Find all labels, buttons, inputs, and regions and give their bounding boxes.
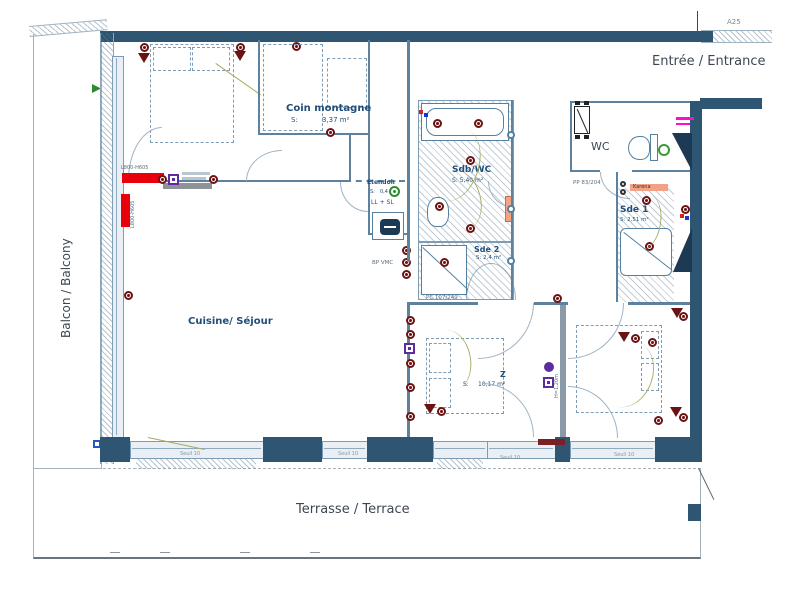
note-line (182, 172, 210, 175)
power-outlet-icon (326, 128, 335, 137)
wall-light-icon (544, 362, 554, 372)
wall-light-icon (234, 51, 246, 61)
area-label-etendoir: 0,4 (380, 190, 388, 195)
door-hinge-icon (620, 189, 626, 195)
dimension-tick (160, 552, 170, 553)
power-outlet-icon (648, 338, 657, 347)
wall-fixture-icon (507, 257, 515, 265)
tv-socket-icon (168, 174, 179, 185)
central-wall (407, 40, 410, 262)
partition-wall (570, 170, 600, 172)
area-label-sde2: S: 2,4 m² (476, 256, 501, 262)
meter-mark (676, 117, 694, 120)
terrace-post (688, 504, 701, 521)
partition-wall (258, 40, 260, 135)
power-outlet-icon (406, 359, 415, 368)
terrace-label: Terrasse / Terrace (296, 503, 410, 516)
exterior-wall-bottom (655, 437, 702, 462)
zone-label-chambre: Z (500, 371, 506, 379)
power-outlet-icon (679, 312, 688, 321)
entrance-side-wall (700, 98, 762, 109)
window-line (435, 448, 485, 449)
window-line (489, 448, 553, 449)
area-label-coin-montagne: 3,37 m² (322, 117, 349, 124)
panel-terminal (584, 101, 589, 105)
power-outlet-icon (553, 294, 562, 303)
window (433, 441, 489, 459)
power-outlet-icon (406, 316, 415, 325)
bed-pillow (192, 47, 230, 71)
dimension-tick (240, 552, 250, 553)
window-arc (482, 383, 534, 437)
radiator-label: L800-H605 (131, 194, 138, 228)
corridor-wall (408, 302, 478, 305)
power-outlet-icon (440, 258, 449, 267)
power-outlet-icon (474, 119, 483, 128)
power-outlet-icon (236, 43, 245, 52)
power-outlet-icon (437, 407, 446, 416)
power-outlet-icon (406, 330, 415, 339)
power-outlet-icon (679, 413, 688, 422)
threshold-label: Seuil 10 (180, 452, 200, 457)
partition-wall (632, 170, 690, 172)
left-glazing-line (116, 58, 117, 435)
supply-mark (685, 216, 689, 220)
floor-plan: Balcon / Balcony Terrasse / Terrace Entr… (0, 0, 800, 600)
room-label-cuisine-sejour: Cuisine/ Séjour (188, 317, 273, 327)
power-outlet-icon (406, 383, 415, 392)
threshold-label: Seuil 10 (338, 452, 358, 457)
power-outlet-icon (140, 43, 149, 52)
door-arc (478, 303, 534, 359)
window-line (324, 448, 365, 449)
sink-slot (384, 226, 396, 228)
power-outlet-icon (209, 175, 218, 184)
partition-wall (368, 40, 370, 235)
karena-label: Karena (633, 185, 651, 190)
power-outlet-icon (433, 119, 442, 128)
power-outlet-icon (681, 205, 690, 214)
radiator-label: L800-H605 (121, 166, 148, 171)
power-outlet-icon (158, 175, 167, 184)
bp-vmc-label: BP VMC (372, 261, 393, 267)
wall-fixture-icon (507, 131, 515, 139)
door-arc (340, 182, 368, 212)
note-line (182, 177, 206, 180)
exterior-wall-bottom (263, 437, 322, 462)
partition-wall (570, 101, 572, 172)
corridor-wall (628, 302, 690, 305)
toilet-icon (628, 136, 650, 160)
heater-bar (538, 439, 565, 445)
exterior-wall-bottom (100, 437, 130, 462)
bed-pillow (153, 47, 191, 71)
window-sill-hatch (136, 459, 256, 469)
switch-icon (543, 377, 554, 388)
area-prefix-etendoir: S: (370, 190, 375, 195)
entrance-label: Entrée / Entrance (652, 55, 766, 68)
room-label-etendoir: Etendoir (367, 180, 396, 186)
door-hinge-icon (620, 181, 626, 187)
bunk-bed (327, 58, 367, 108)
threshold-label: Seuil 10 (614, 453, 634, 458)
wardrobe-icon (673, 228, 692, 272)
dimension-tick (310, 552, 320, 553)
power-outlet-icon (654, 416, 663, 425)
toilet-tank (650, 134, 658, 161)
room-label-coin-montagne: Coin montagne (286, 104, 371, 114)
power-outlet-icon (406, 412, 415, 421)
supply-mark (680, 214, 684, 218)
panel-terminal (575, 135, 580, 139)
panel-terminal (584, 135, 589, 139)
equipment-label-etendoir: LL + SL (371, 200, 394, 206)
exterior-wall-bottom (367, 437, 433, 462)
smoke-detector-icon (389, 186, 400, 197)
supply-mark (424, 113, 428, 117)
dimension-tick (110, 552, 120, 553)
balcony-label: Balcon / Balcony (60, 222, 76, 338)
tv-socket-icon (404, 343, 415, 354)
meter-mark (676, 123, 690, 125)
window-sill-hatch (437, 459, 483, 469)
door-arc (246, 150, 282, 181)
area-prefix-coin-montagne: S: (291, 117, 298, 124)
radiator (121, 194, 130, 227)
window-line (572, 448, 653, 449)
partition-wall (349, 133, 351, 181)
pc-ref-label: PC 107/249 (426, 296, 458, 302)
room-label-wc: WC (591, 141, 610, 152)
corridor-wall (511, 100, 513, 300)
supply-mark (419, 110, 423, 114)
power-outlet-icon (124, 291, 133, 300)
washbasin-icon (658, 144, 670, 156)
room-label-sde2: Sde 2 (474, 246, 499, 254)
height-note-label: H=1,20m (555, 356, 563, 398)
threshold-label: Seuil 10 (500, 456, 520, 461)
left-glazing (112, 56, 124, 439)
wall-ref-label: A25 (727, 19, 741, 26)
pp-ref-label: PP 83/204 (573, 181, 601, 187)
partition-wall (258, 133, 370, 135)
power-outlet-icon (402, 270, 411, 279)
wall-light-icon (138, 53, 150, 63)
wardrobe-icon (672, 133, 692, 171)
wall-ref-tick (697, 11, 698, 32)
panel-terminal (575, 101, 580, 105)
wall-fixture-icon (507, 205, 515, 213)
